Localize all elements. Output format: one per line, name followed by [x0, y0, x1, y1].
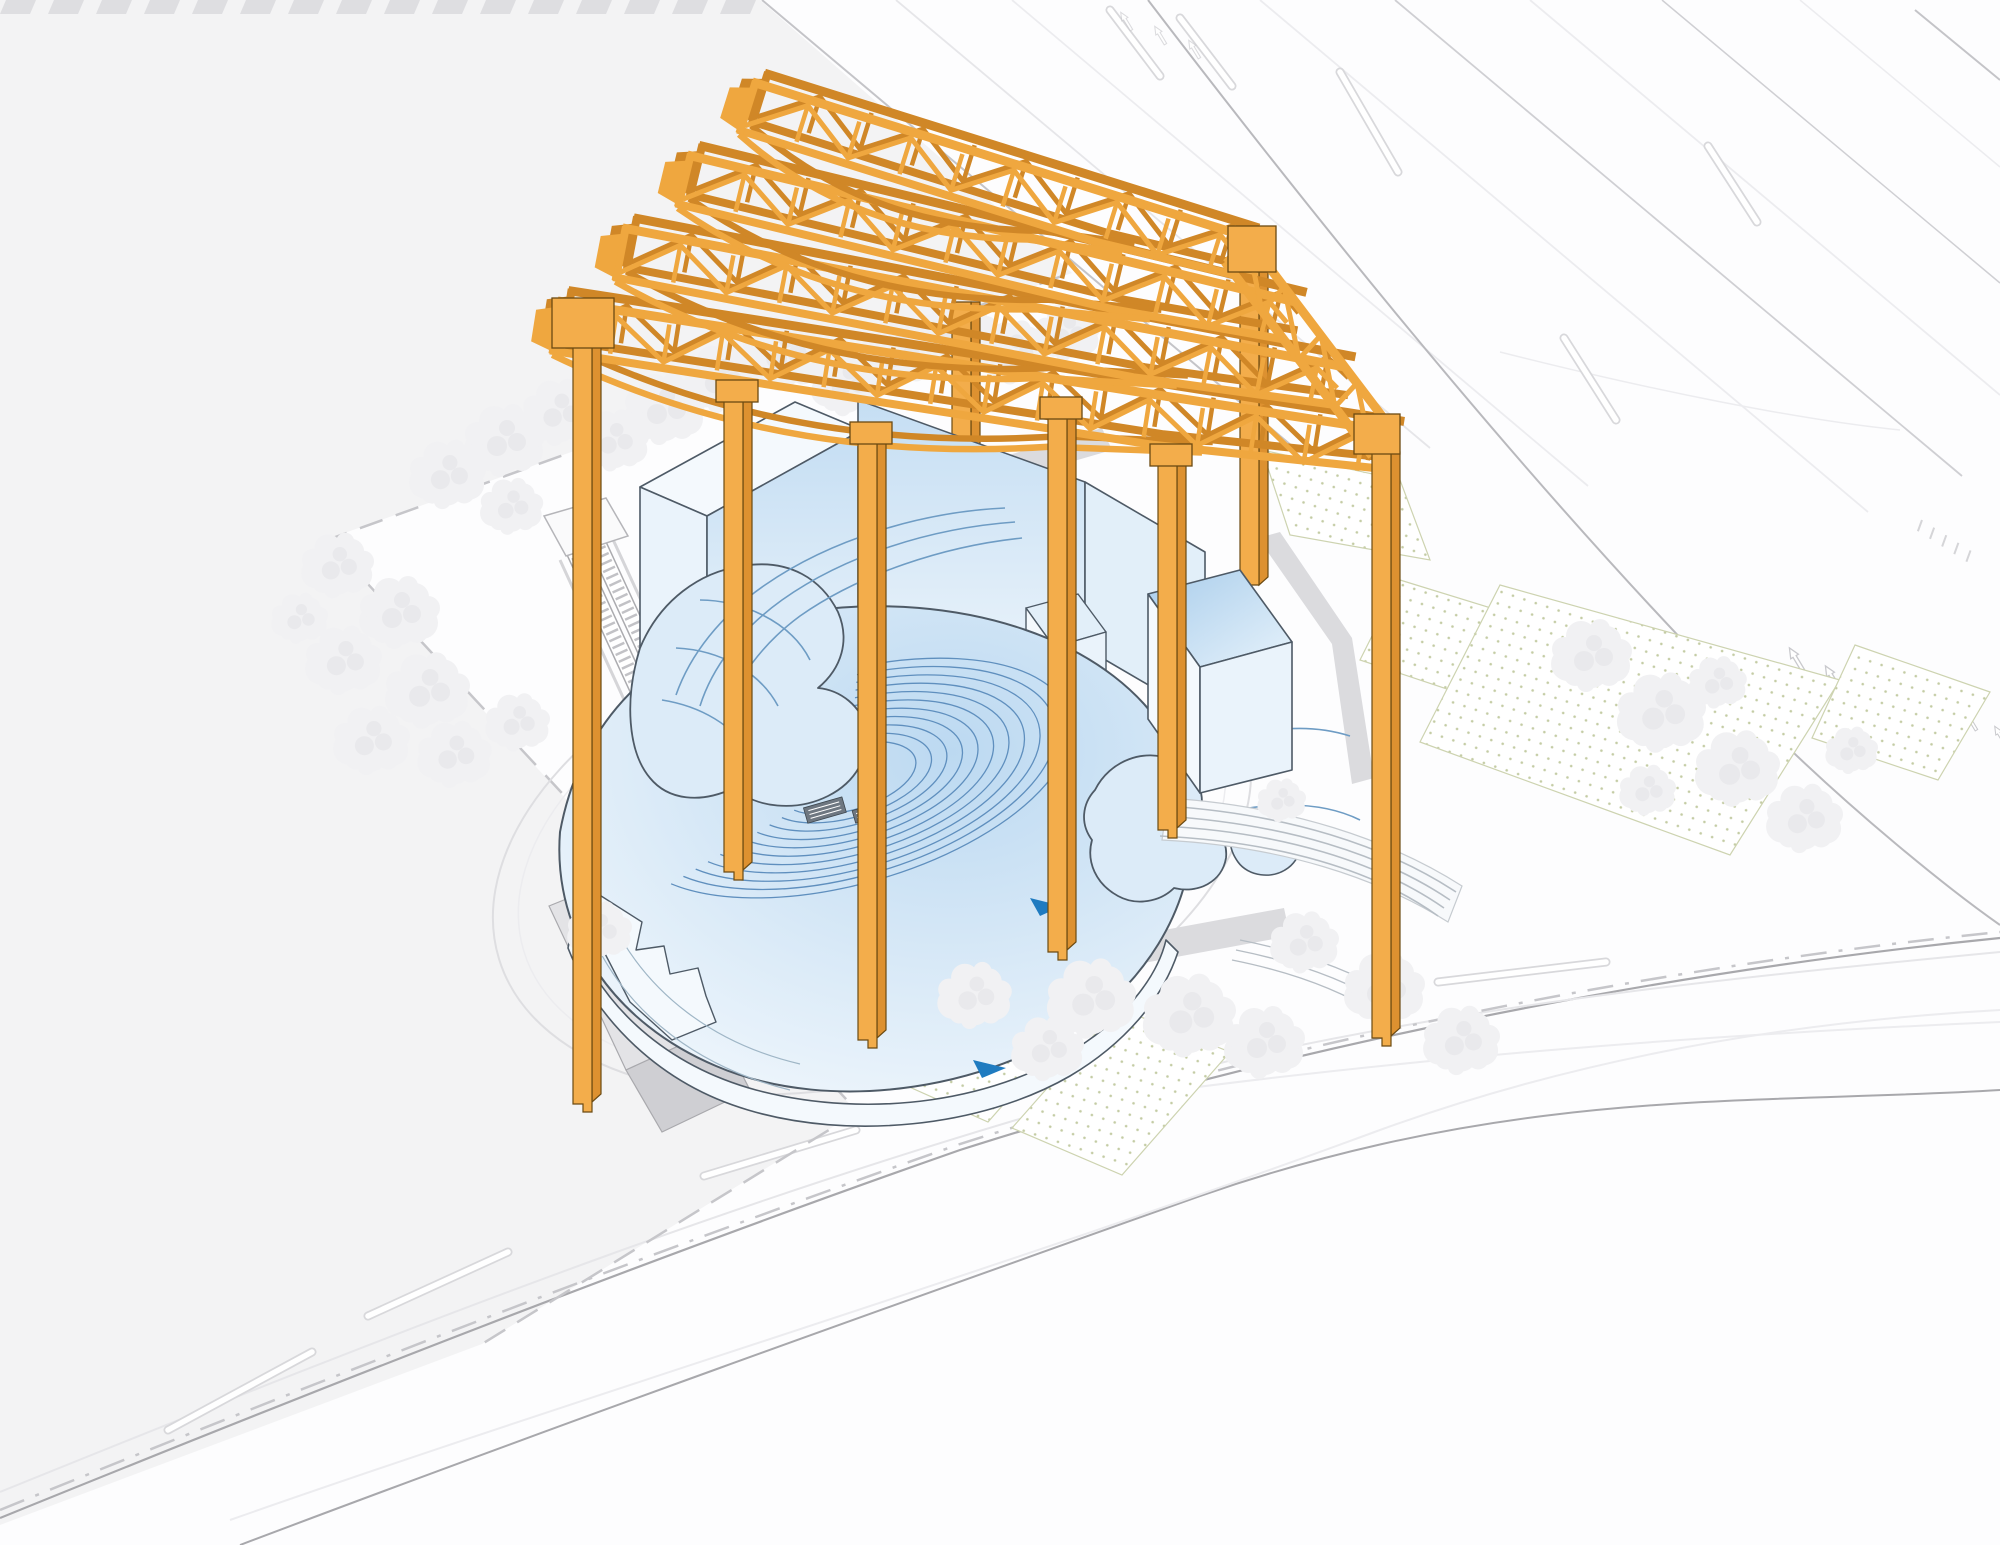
crane-capital — [1040, 397, 1082, 419]
crane-column-3 — [858, 440, 886, 1048]
crane-capital — [1150, 444, 1192, 466]
crane-column-5 — [1048, 415, 1076, 960]
crane-column-1 — [573, 345, 601, 1112]
crane-capital — [716, 380, 758, 402]
crane-capital — [850, 422, 892, 444]
crane-capital — [1354, 414, 1400, 454]
crane-capital — [552, 298, 614, 348]
crane-column-2 — [724, 398, 752, 880]
crane-capital — [1228, 226, 1276, 272]
crane-column-6 — [1158, 462, 1186, 838]
crane-column-8 — [1372, 452, 1400, 1046]
site-axonometric-diagram: Axonometric site diagram — orange gantry… — [0, 0, 2000, 1545]
